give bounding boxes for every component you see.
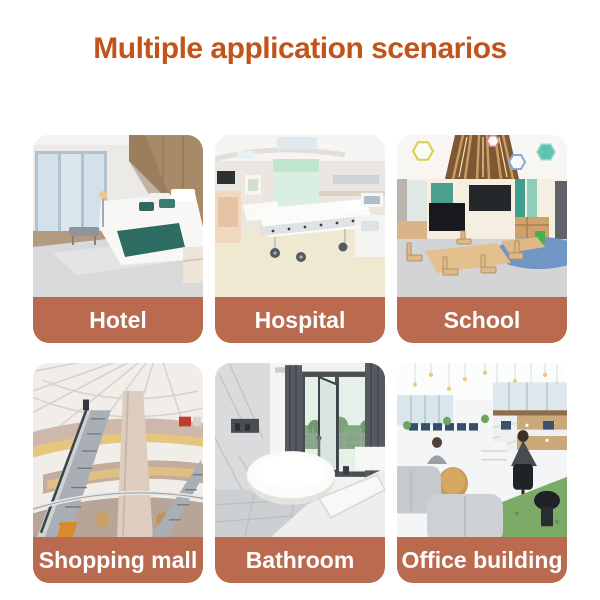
office-building-scene-illustration [397, 363, 567, 537]
bathroom-photo [215, 363, 385, 537]
scenario-label-banner: Hotel [33, 297, 203, 343]
scenario-label-bathroom: Bathroom [246, 547, 355, 574]
scenario-card-office-building: Office building [397, 363, 567, 583]
scenario-card-hospital: Hospital [215, 135, 385, 343]
scenario-label-shopping-mall: Shopping mall [39, 547, 197, 574]
scenario-label-banner: Office building [397, 537, 567, 583]
shopping-mall-photo [33, 363, 203, 537]
scenario-label-hotel: Hotel [89, 307, 147, 334]
page-title: Multiple application scenarios [0, 0, 600, 66]
hospital-scene-illustration [215, 135, 385, 297]
scenario-grid: Hotel [33, 135, 567, 583]
office-building-photo [397, 363, 567, 537]
scenario-label-banner: Bathroom [215, 537, 385, 583]
scenario-card-shopping-mall: Shopping mall [33, 363, 203, 583]
hotel-scene-illustration [33, 135, 203, 297]
bathroom-scene-illustration [215, 363, 385, 537]
shopping-mall-scene-illustration [33, 363, 203, 537]
scenario-label-banner: Hospital [215, 297, 385, 343]
scenario-label-banner: Shopping mall [33, 537, 203, 583]
school-scene-illustration [397, 135, 567, 297]
scenario-card-bathroom: Bathroom [215, 363, 385, 583]
scenario-card-school: School [397, 135, 567, 343]
scenario-card-hotel: Hotel [33, 135, 203, 343]
school-photo [397, 135, 567, 297]
multiple-application-scenarios-graphic: Multiple application scenarios [0, 0, 600, 600]
scenario-label-banner: School [397, 297, 567, 343]
scenario-label-hospital: Hospital [255, 307, 346, 334]
scenario-label-school: School [444, 307, 521, 334]
hospital-photo [215, 135, 385, 297]
scenario-label-office-building: Office building [402, 547, 563, 574]
hotel-photo [33, 135, 203, 297]
